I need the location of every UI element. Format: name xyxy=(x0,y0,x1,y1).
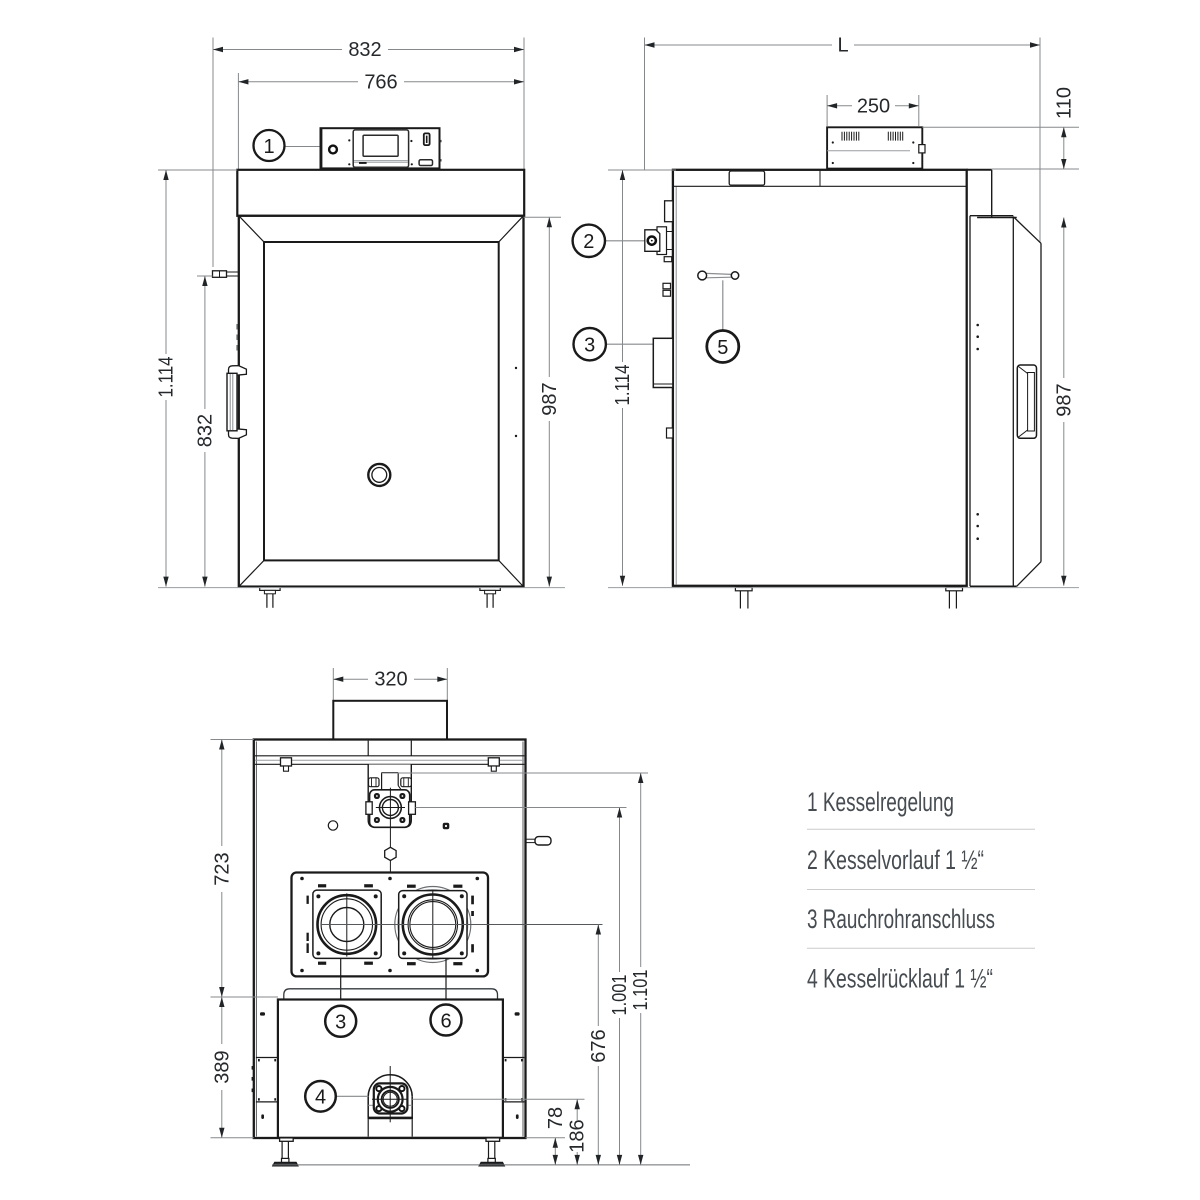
svg-text:320: 320 xyxy=(374,669,407,691)
svg-text:389: 389 xyxy=(211,1050,233,1083)
svg-text:1.114: 1.114 xyxy=(612,365,634,406)
svg-text:186: 186 xyxy=(567,1119,589,1152)
svg-text:6: 6 xyxy=(440,1010,451,1032)
svg-text:4: 4 xyxy=(315,1087,326,1109)
svg-text:1: 1 xyxy=(263,136,274,158)
svg-text:766: 766 xyxy=(364,71,397,93)
svg-text:1.101: 1.101 xyxy=(630,970,652,1011)
svg-text:110: 110 xyxy=(1053,87,1075,119)
svg-text:1 Kesselregelung: 1 Kesselregelung xyxy=(807,787,954,817)
svg-text:676: 676 xyxy=(588,1029,610,1062)
svg-text:2: 2 xyxy=(583,231,594,253)
svg-text:78: 78 xyxy=(545,1107,567,1129)
svg-text:4 Kesselrücklauf 1 ½“: 4 Kesselrücklauf 1 ½“ xyxy=(807,964,993,994)
svg-text:2 Kesselvorlauf 1 ½“: 2 Kesselvorlauf 1 ½“ xyxy=(807,845,984,875)
svg-text:250: 250 xyxy=(857,95,890,117)
svg-text:3 Rauchrohranschluss: 3 Rauchrohranschluss xyxy=(807,904,995,934)
svg-text:832: 832 xyxy=(194,414,216,447)
svg-text:832: 832 xyxy=(348,39,381,61)
svg-text:L: L xyxy=(837,35,848,57)
svg-text:3: 3 xyxy=(335,1012,346,1034)
svg-text:5: 5 xyxy=(717,337,728,359)
svg-text:723: 723 xyxy=(211,852,233,885)
svg-text:1.114: 1.114 xyxy=(156,357,178,398)
svg-text:1.001: 1.001 xyxy=(609,975,631,1016)
svg-text:987: 987 xyxy=(539,382,561,415)
svg-text:987: 987 xyxy=(1053,383,1075,416)
svg-text:3: 3 xyxy=(584,335,595,357)
